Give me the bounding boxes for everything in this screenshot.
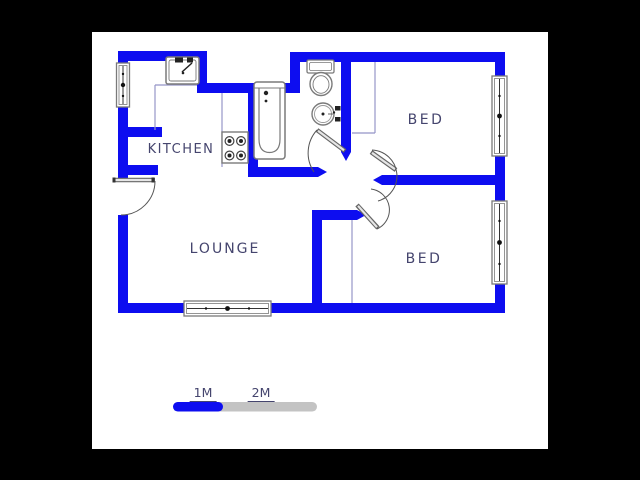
room-label-lounge: LOUNGE [190, 241, 261, 257]
window-icon-bed1 [492, 76, 507, 156]
windows [117, 63, 508, 316]
floor-plan-canvas: KITCHEN BED BED LOUNGE 1M 2M [0, 0, 640, 480]
scale-label-1m: 1M [190, 385, 217, 402]
bed2-door-icon [357, 189, 389, 229]
scale-bar [173, 402, 317, 412]
front-door-icon [113, 178, 156, 216]
door-jambs [318, 152, 382, 220]
bathtub-icon [254, 82, 285, 159]
scale-bar-blue [173, 402, 223, 412]
window-icon-lounge [184, 301, 271, 316]
toilet-icon [307, 60, 334, 96]
window-icon-bed2 [492, 201, 507, 284]
kitchen-sink-icon [166, 57, 199, 84]
stove-icon [222, 132, 248, 163]
scale-label-2m: 2M [248, 385, 275, 402]
room-label-bed-bottom: BED [406, 251, 443, 267]
bathroom-door-icon [308, 130, 345, 172]
basin-icon [312, 103, 341, 125]
room-label-bed-top: BED [408, 112, 445, 128]
jamb-hall [318, 167, 327, 177]
jamb-bed1 [373, 175, 382, 185]
window-icon-kitchen [117, 63, 130, 107]
room-label-kitchen: KITCHEN [148, 142, 215, 157]
jamb-bath [341, 152, 351, 161]
floor-plan-drawing [0, 0, 640, 480]
